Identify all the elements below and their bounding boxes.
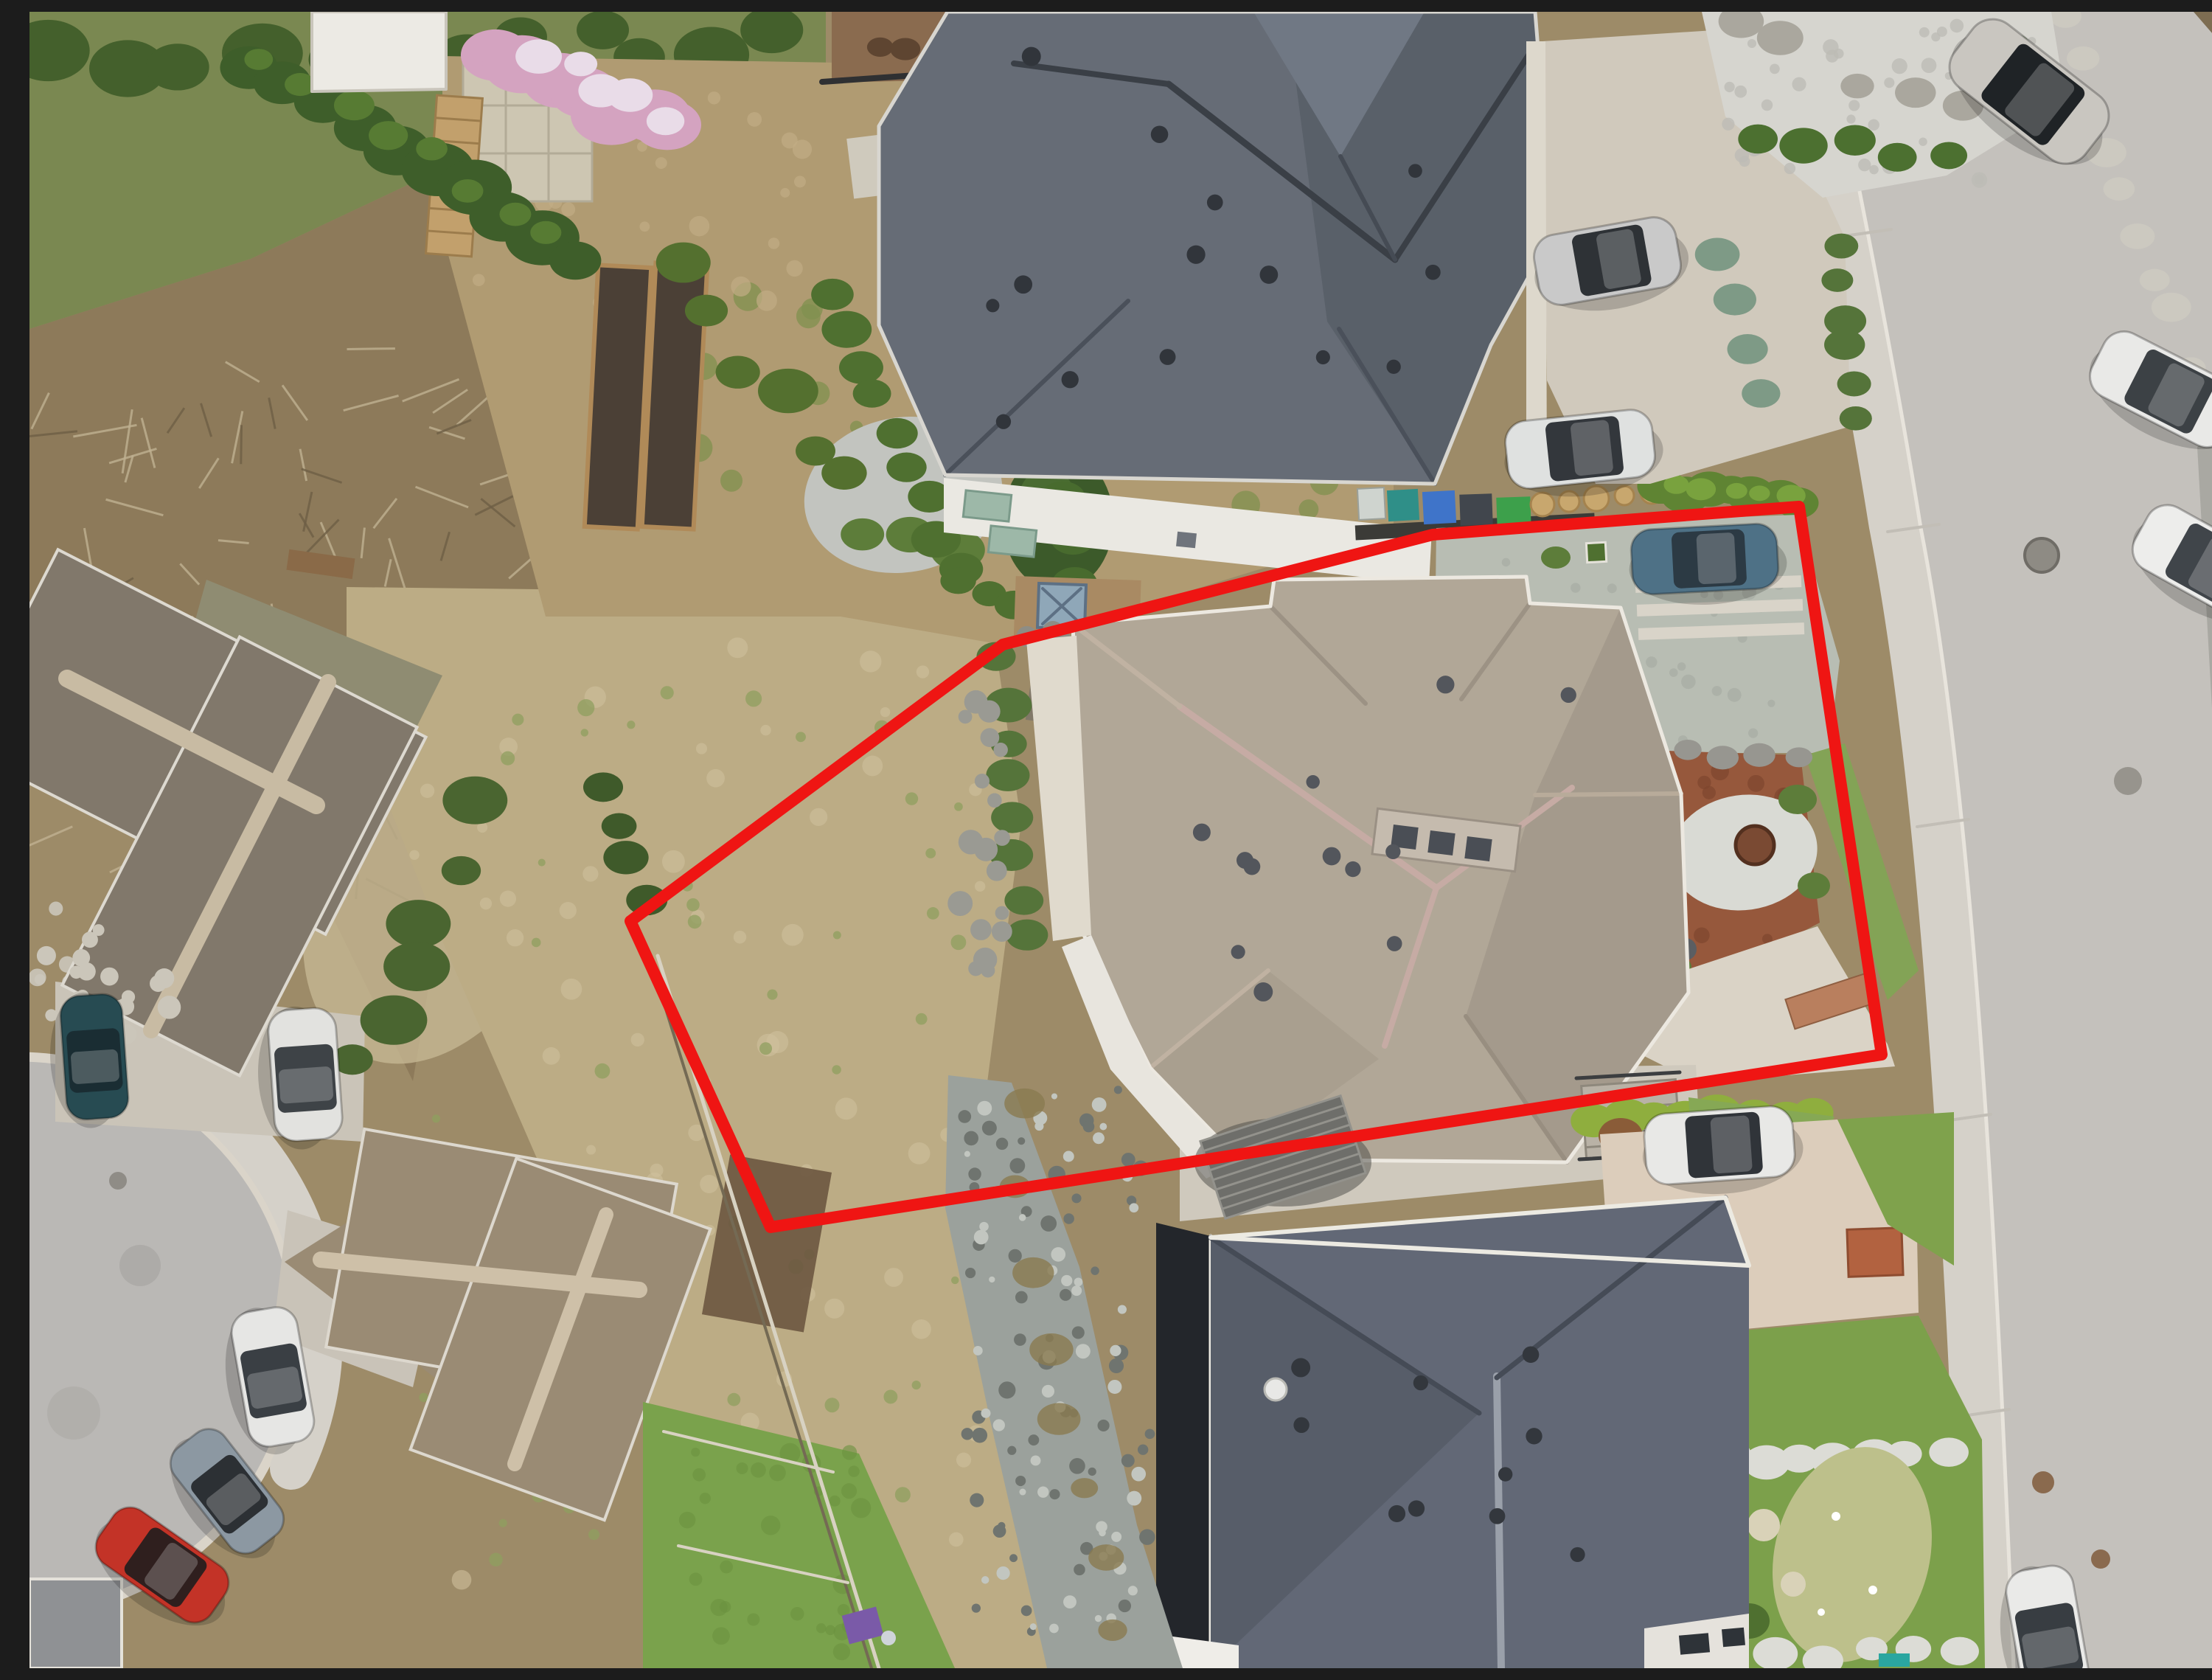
swale-stones-light-dot [1107,1380,1121,1394]
field-streaks-dot [734,931,746,943]
gravel-yard-texture-dot [1669,668,1678,677]
pebble-shrubs-blob [1878,143,1917,172]
pebble-boulders-blob [1895,77,1935,108]
field-streaks-dot [706,769,725,788]
pebble-texture-dot [1919,27,1930,38]
side-rocks-dot [978,701,1000,723]
garden-moss-dot [796,304,821,328]
field-weeds-dot [950,934,966,950]
cedar-bushes-blob [602,813,637,839]
clerestory-window-1 [963,490,1011,521]
swale-stones-dark-dot [993,1524,1006,1538]
pavement-stain-1 [119,1245,161,1286]
white-suv-top-driveway-roof [1570,420,1613,476]
field-streaks-dot [824,1299,844,1319]
swale-stones-dark-dot [1139,1529,1155,1545]
field-weeds-dot [767,989,777,999]
hill-rock-wall-blob [2140,269,2170,291]
teal-yard-item [1879,1653,1910,1667]
swale-weeds-blob [1012,1257,1054,1288]
pebble-texture-dot [1792,77,1806,91]
swale-stones-dark-dot [1028,1434,1039,1445]
field-streaks-dot [631,1033,644,1046]
swale-stones-dark-dot [961,1428,973,1440]
field-streaks-dot [507,929,524,946]
garden-dry-spots-dot [780,188,790,198]
swale-stones-dark-dot [1009,1158,1025,1173]
bottom-roof-vents-dot [1498,1467,1512,1481]
swale-stones-dark-dot [1138,1444,1148,1454]
swale-stones-light-dot [1129,1203,1138,1212]
blue-green-bushes-blob [1728,334,1768,364]
side-rocks-dot [987,794,1002,808]
pebble-texture-dot [1921,58,1937,73]
log-stump-1 [1531,493,1554,516]
swale-stones-light-dot [1071,1285,1082,1296]
swale-stones-dark-dot [1121,1153,1135,1167]
left-house-shrubs-blob [383,942,450,991]
swale-stones-dark-dot [958,1110,971,1123]
gravel-yard-texture-dot [1767,700,1775,707]
field-weeds-dot [883,1390,897,1404]
verge-shrubs-blob [1840,406,1872,431]
swale-stones-dark-dot [1071,1193,1081,1203]
raised-bed-1 [585,265,651,529]
field-weeds-dot [512,714,524,726]
garden-shrubs-blob [685,295,728,327]
top-house-vents-dot [1022,47,1041,66]
swale-stones-light-dot [1110,1345,1121,1356]
swale-stones-light-dot [1074,1277,1083,1286]
putting-hole-1 [1832,1512,1840,1521]
gravel-yard-texture-dot [1748,728,1758,737]
aerial-photo-canvas: Aerial drone photo of a residential prop… [29,12,2212,1668]
swale-stones-dark-dot [1098,1420,1110,1431]
swale-stones-light-dot [1127,1491,1141,1506]
subject-roof-vents-dot [1385,844,1400,859]
left-rock-garden-dot [158,996,181,1019]
wall-window-1 [1679,1633,1710,1654]
swale-stones-light-dot [1037,1486,1048,1497]
swale-stones-light-dot [1128,1586,1138,1595]
aerial-photo: Aerial drone photo of a residential prop… [29,12,2212,1668]
side-rocks-dot [959,709,973,723]
teal-bin [1387,489,1419,521]
gravel-circle-shrubs-blob [841,518,884,551]
bottom-roof-vents-dot [1570,1547,1585,1562]
field-weeds-dot [588,1529,599,1540]
garden-shrubs-blob [758,369,818,413]
lawn-texture-dot [829,1496,841,1507]
wall-vent [1176,532,1197,549]
blue-green-bushes-blob [1695,238,1740,271]
side-rocks-dot [995,906,1009,920]
field-weeds-dot [688,915,702,929]
cedar-hedge-row-blob [549,241,601,280]
field-weeds-dot [432,1114,440,1122]
garden-bush-2 [1798,872,1830,899]
side-rocks-dot [992,921,1012,942]
field-weeds-dot [951,1277,959,1284]
white-shed-roof [312,12,446,91]
deck-chairs-blob [867,38,894,57]
field-weeds-dot [489,1553,502,1566]
top-house-vents-dot [1151,125,1169,143]
top-house-vents-dot [986,299,999,312]
swale-stones-light-dot [1030,1623,1037,1630]
pebble-boulders-blob [1840,74,1874,99]
lawn-texture-dot [700,1493,711,1504]
blue-green-bushes-blob [1714,284,1756,316]
lawn-texture-dot [720,1561,733,1574]
pebble-shrubs-blob [1834,125,1876,155]
field-weeds-dot [727,1393,740,1406]
cul-de-sac-manhole [109,1172,127,1190]
side-hedge-blob [986,759,1029,791]
pebble-texture-dot [1846,114,1855,123]
field-streaks-dot [911,1319,931,1339]
garden-dry-spots-dot [731,277,751,296]
top-house-vents-dot [1386,360,1400,374]
pebble-texture-dot [1950,19,1964,33]
pebble-texture-dot [1931,32,1940,41]
wall-window-2 [1722,1628,1745,1648]
front-hedge-highlight-blob [1749,485,1770,501]
field-streaks-dot [560,902,577,919]
pebble-shrubs-blob [1738,125,1778,154]
boxwood-hedge-upper-blob [886,453,926,482]
mulch-texture-dot [1694,927,1710,943]
swale-stones-dark-dot [1021,1606,1032,1617]
field-streaks-dot [908,1142,931,1164]
pebble-texture-dot [1834,49,1844,59]
field-weeds-dot [905,792,918,805]
dark-roof-band [1156,1223,1211,1668]
field-streaks-dot [662,850,685,873]
field-weeds-dot [759,1042,772,1055]
field-weeds-dot [745,690,762,707]
swale-stones-dark-dot [982,1121,997,1136]
yard-shrub-a [1541,546,1571,569]
lawn-texture-dot [848,1465,859,1476]
top-house-vents-dot [1160,349,1176,365]
lawn-texture-dot [761,1516,780,1535]
garden-dry-spots-dot [794,176,806,187]
gravel-yard-texture-dot [1728,688,1742,702]
field-weeds-dot [916,1013,928,1025]
field-streaks-dot [543,1047,560,1065]
subject-roof-vents-dot [1231,945,1245,959]
swale-stones-dark-dot [1060,1289,1071,1301]
lawn-texture-dot [751,1462,766,1478]
swale-stones-light-dot [979,1222,989,1232]
pebble-texture-dot [1858,159,1871,171]
bottom-roof-vents-dot [1388,1505,1405,1522]
left-rock-garden-dot [35,974,46,985]
field-streaks-dot [860,650,881,672]
hill-rock-wall-blob [2152,293,2191,322]
boxwood-hedge-upper-blob [821,311,872,348]
swale-stones-light-dot [1019,1489,1026,1496]
swale-stones-dark-dot [1069,1458,1085,1474]
chimney-vent-3 [1464,836,1492,861]
left-rock-garden-dot [77,962,96,981]
verge-shrubs-blob [1824,234,1858,259]
field-streaks-dot [696,743,707,754]
swale-weeds-blob [1004,1089,1045,1119]
side-rocks-dot [974,838,998,861]
swale-stones-dark-dot [996,1138,1008,1150]
swale-stones-light-dot [1095,1615,1102,1622]
swale-stones-dark-dot [1009,1554,1018,1562]
side-rocks-dot [987,861,1007,881]
top-house-vents-dot [1260,265,1279,284]
pebble-texture-dot [1892,58,1907,74]
swale-stones-light-dot [1111,1532,1121,1542]
gray-garbage-bin [1459,493,1492,526]
lawn-texture-dot [710,1599,727,1616]
sand-trap-2 [1781,1572,1806,1597]
field-weeds-dot [925,848,936,858]
left-rock-garden-dot [82,931,98,948]
swale-stones-light-dot [974,1230,989,1245]
field-weeds-dot [581,729,588,736]
hill-rock-wall-blob [2104,177,2135,201]
gravel-yard-texture-dot [1571,583,1580,592]
swale-stones-dark-dot [1091,1266,1099,1274]
top-house-vents-dot [1186,246,1205,264]
white-blossom-highlight-blob [515,39,562,73]
swale-stones-light-dot [1063,1595,1077,1608]
pebble-texture-dot [1919,137,1927,145]
lawn-texture-dot [833,1643,850,1660]
field-streaks-dot [956,1453,971,1468]
field-weeds-dot [954,802,963,811]
swale-stones-light-dot [1042,1385,1054,1398]
white-van-left-driveway-roof [278,1066,333,1104]
swale-stones-light-dot [1063,1151,1074,1162]
swale-stones-light-dot [1031,1456,1041,1466]
field-streaks-dot [862,756,883,777]
white-blossom-highlight-blob [647,107,684,135]
left-rock-garden-dot [45,1009,58,1021]
garden-dry-spots-dot [708,91,720,104]
swale-stones-dark-dot [1072,1326,1085,1339]
field-streaks-dot [561,979,582,1000]
lawn-texture-dot [825,1625,835,1635]
pebble-shrubs-blob [1930,142,1967,169]
pebble-texture-dot [1884,77,1894,88]
field-streaks-dot [760,725,771,736]
field-streaks-dot [586,1145,596,1155]
field-weeds-dot [627,721,635,729]
swale-weeds-blob [1071,1478,1098,1498]
subject-roof-vents-dot [1193,824,1211,841]
garden-dry-spots-dot [768,237,780,249]
field-weeds-dot [501,752,515,766]
swale-stones-light-dot [1096,1521,1107,1533]
side-hedge-blob [1006,920,1048,951]
swale-stones-light-dot [1092,1097,1107,1112]
rust-spot-1 [2032,1471,2054,1493]
pebble-texture-dot [1722,118,1734,131]
field-weeds-dot [833,931,841,940]
blue-green-bushes-blob [1742,379,1780,408]
lawn-texture-dot [769,1465,786,1482]
left-rock-garden-dot [100,968,119,986]
swale-stones-dark-dot [970,1493,984,1507]
field-weeds-dot [661,686,674,699]
bare-branches-light-twig [347,349,394,350]
swale-stones-dark-dot [972,1428,987,1443]
swale-stones-dark-dot [1119,1600,1131,1612]
field-streaks-dot [975,881,985,892]
swale-stones-dark-dot [998,1381,1015,1398]
swale-stones-light-dot [981,1576,989,1583]
bottom-roof-vents-dot [1291,1358,1310,1378]
boxwood-hedge-upper-blob [811,279,854,310]
lawn-texture-dot [816,1623,826,1633]
rust-spot-2 [2091,1549,2110,1569]
cedar-bushes-blob [583,772,623,802]
top-house-vents-dot [1062,371,1079,388]
gravel-yard-texture-dot [1646,656,1657,667]
swale-stones-dark-dot [1007,1446,1016,1455]
white-blossom-highlight-blob [564,52,597,76]
field-streaks-dot [582,866,598,881]
top-house-vents-dot [996,414,1011,429]
deck-chairs-blob [890,38,920,60]
front-hedge-highlight-blob [1726,483,1747,499]
pebble-texture-dot [1761,100,1773,111]
garden-dry-spots-dot [786,260,802,277]
verge-shrubs-blob [1821,268,1853,292]
swale-stones-light-dot [1019,1214,1026,1221]
white-bin [1357,487,1385,520]
blue-recycle-bin [1422,490,1456,524]
field-streaks-dot [420,784,434,798]
subject-roof-vents-dot [1323,847,1341,866]
white-gravel-border-top-blob [1929,1437,1969,1467]
lawn-texture-dot [747,1613,759,1625]
swale-weeds-blob [1029,1333,1073,1366]
swale-weeds-blob [1037,1403,1081,1434]
swale-stones-dark-dot [964,1131,978,1146]
garden-dry-spots-dot [689,216,710,237]
garden-shrubs-blob [716,355,760,388]
field-weeds-dot [825,1398,840,1412]
garden-dry-spots-dot [747,112,762,127]
field-weeds-dot [927,907,939,920]
bottom-roof-vents-dot [1489,1508,1506,1524]
swale-stones-dark-dot [1145,1429,1155,1439]
left-house-shrubs-blob [386,900,451,948]
lawn-texture-dot [842,1445,857,1459]
gravel-yard-texture-dot [1607,583,1617,593]
subject-roof-vents-dot [1387,936,1402,951]
bottom-roof-vents-dot [1413,1375,1428,1390]
field-weeds-dot [532,938,541,948]
top-house-vents-dot [1425,265,1441,280]
lawn-texture-dot [841,1483,857,1499]
rock-border-top-blob [1674,740,1701,760]
pebble-texture-dot [1869,165,1879,175]
left-drive-pebbles-dot [49,902,63,916]
teal-car-left-driveway-roof [70,1049,119,1084]
white-roof-vent [1265,1378,1287,1400]
swale-stones-dark-dot [968,1167,981,1180]
pebble-texture-dot [1848,100,1860,111]
verge-shrubs-blob [1837,371,1871,396]
left-rock-garden-dot [150,975,167,992]
sand-trap-1 [1747,1509,1780,1541]
swale-stones-light-dot [1049,1624,1059,1634]
pebble-texture-dot [1975,175,1984,184]
field-streaks-dot [810,808,827,826]
top-house-vents-dot [1014,275,1032,294]
lawn-texture-dot [679,1512,696,1529]
left-rock-garden-dot [122,990,135,1004]
gravel-yard-texture-dot [1502,558,1511,567]
white-gravel-border-bottom-blob [1941,1637,1979,1666]
gravel-yard-texture-dot [1677,662,1686,670]
utility-pad [1847,1228,1903,1277]
swale-stones-light-dot [1051,1093,1057,1099]
field-streaks-dot [917,665,929,678]
lawn-texture-dot [736,1462,748,1474]
putting-hole-3 [1818,1608,1825,1616]
left-rock-garden-dot [37,946,56,965]
field-streaks-dot [480,898,492,909]
hill-rock-wall-blob [2120,223,2154,249]
field-streaks-dot [782,924,804,946]
swale-stones-light-dot [1061,1275,1072,1286]
verge-shrubs-blob [1824,330,1865,360]
bottom-roof-vents-dot [1408,1500,1425,1516]
swale-stones-dark-dot [1074,1564,1085,1576]
lawn-texture-dot [689,1572,703,1586]
top-house-vents-dot [1316,350,1330,364]
boxwood-hedge-upper-blob [853,379,891,407]
garden-moss-dot [720,470,742,492]
pebble-boulders-blob [1757,21,1804,55]
cedar-hedge-highlight-blob [369,121,408,150]
blue-hatchback-subject-driveway-roof [1696,532,1736,585]
field-weeds-dot [577,699,594,716]
side-rocks-dot [970,919,992,940]
swale-stones-dark-dot [1009,1249,1022,1263]
pebble-texture-dot [1739,156,1750,167]
garden-dry-spots-dot [639,221,650,232]
putting-hole-2 [1868,1586,1877,1594]
swale-stones-dark-dot [1014,1333,1026,1346]
swale-stones-light-dot [977,1101,992,1116]
cedar-hedge-highlight-blob [334,91,375,121]
pebble-texture-dot [1770,64,1780,74]
swale-stones-light-dot [993,1419,1005,1431]
boxwood-hedge-upper-blob [839,351,883,383]
field-weeds-dot [595,1063,611,1079]
swale-stones-light-dot [1093,1132,1105,1144]
field-weeds-dot [796,732,806,742]
swale-stones-light-dot [1131,1467,1146,1482]
corner-house-roof [29,1579,122,1668]
subject-roof-vents-dot [1306,775,1319,788]
cedar-hedge-highlight-blob [499,203,531,226]
field-streaks-dot [949,1533,964,1547]
swale-stones-dark-dot [1063,1213,1074,1223]
field-weeds-dot [912,1381,921,1389]
